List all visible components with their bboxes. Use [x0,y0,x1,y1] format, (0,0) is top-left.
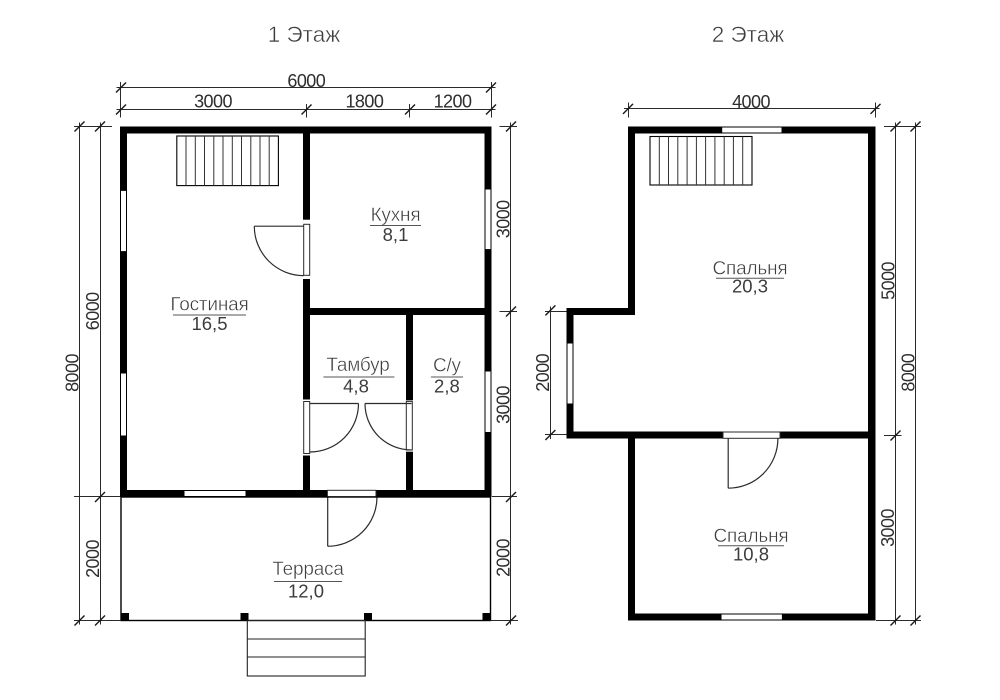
svg-text:С/у: С/у [433,356,462,377]
svg-text:1800: 1800 [345,92,383,112]
svg-text:10,8: 10,8 [733,544,769,565]
svg-text:1 Этаж: 1 Этаж [268,22,341,47]
svg-text:2000: 2000 [533,353,553,391]
svg-text:2,8: 2,8 [434,376,460,397]
svg-text:3000: 3000 [194,92,232,112]
svg-text:16,5: 16,5 [191,313,227,334]
svg-text:2000: 2000 [494,539,514,577]
svg-text:Терраса: Терраса [272,559,344,580]
svg-text:4000: 4000 [732,92,770,112]
svg-text:2000: 2000 [83,540,103,578]
svg-text:1200: 1200 [434,92,472,112]
svg-text:6000: 6000 [83,292,103,330]
svg-text:4,8: 4,8 [343,376,369,397]
svg-text:8,1: 8,1 [383,224,409,245]
svg-text:3000: 3000 [878,509,898,547]
svg-text:6000: 6000 [287,71,325,91]
svg-text:20,3: 20,3 [732,276,768,297]
svg-text:8000: 8000 [898,353,918,391]
svg-text:3000: 3000 [493,386,513,424]
svg-text:2 Этаж: 2 Этаж [712,22,785,47]
svg-text:5000: 5000 [878,261,898,299]
svg-text:12,0: 12,0 [288,581,324,602]
svg-text:8000: 8000 [63,354,83,392]
svg-text:3000: 3000 [493,200,513,238]
svg-text:Кухня: Кухня [371,205,421,226]
svg-text:Тамбур: Тамбур [326,355,389,376]
